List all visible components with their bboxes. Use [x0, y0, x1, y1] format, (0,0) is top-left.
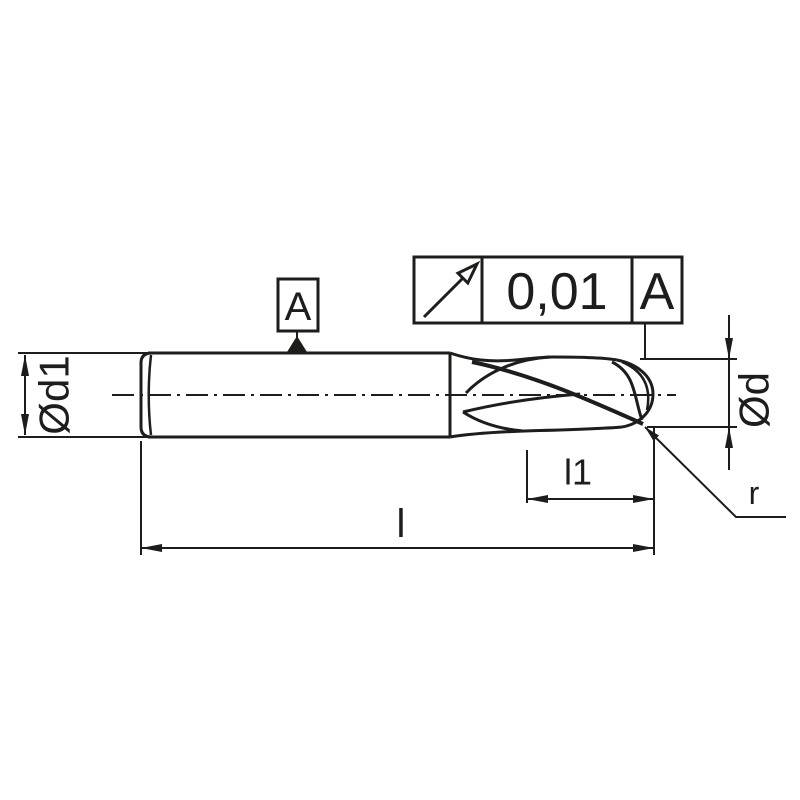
radius-leader: r: [645, 427, 786, 517]
tolerance-frame: 0,01 A: [414, 257, 682, 359]
arrowhead-right-icon: [633, 495, 654, 503]
dimension-flute-length: l1: [527, 428, 654, 555]
overall-length-label: l: [397, 502, 406, 546]
cutting-diameter-label: Ød: [731, 372, 778, 428]
corner-radius-label: r: [749, 475, 760, 511]
arrowhead-right-icon: [633, 544, 654, 552]
tolerance-value: 0,01: [506, 263, 607, 321]
arrowhead-left-icon: [141, 544, 162, 552]
circular-runout-icon: [424, 264, 477, 317]
arrowhead-down-icon: [21, 414, 29, 435]
r-leader-line: [645, 427, 786, 517]
lower-flute-top-curve: [463, 394, 580, 412]
dimension-shank-diameter: Ød1: [21, 355, 78, 435]
datum-triangle-icon: [287, 336, 307, 352]
arrowhead-down-icon: [725, 338, 733, 359]
head-bottom-edge: [450, 427, 622, 437]
arrowhead-left-icon: [527, 495, 548, 503]
arrowhead-up-icon: [21, 355, 29, 376]
flute-length-label: l1: [564, 452, 592, 493]
technical-drawing-canvas: Ød1 A 0,01 A: [0, 0, 800, 800]
arrowhead-up-icon: [725, 427, 733, 448]
tolerance-datum-reference: A: [640, 263, 675, 321]
ball-face-edge-2: [622, 362, 648, 410]
shank-diameter-label: Ød1: [31, 355, 78, 434]
dimension-cutting-diameter: Ød: [640, 315, 778, 470]
end-mill-drawing: Ød1 A 0,01 A: [0, 0, 800, 800]
lower-flute-bottom-curve: [463, 412, 523, 431]
datum-letter: A: [285, 285, 312, 329]
datum-symbol: A: [278, 279, 318, 352]
